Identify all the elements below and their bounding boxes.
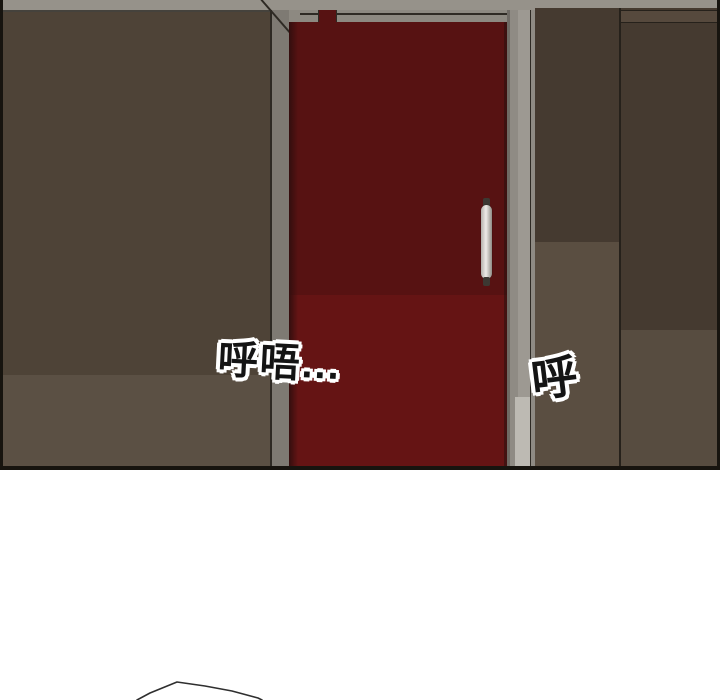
- right-wall-far-panel-lower: [621, 330, 720, 466]
- panel-border-left: [0, 0, 3, 470]
- red-door: [289, 22, 507, 466]
- door-frame-right-highlight: [515, 397, 530, 466]
- right-wall-top-molding: [621, 10, 720, 23]
- door-top-hinge-notch: [318, 10, 337, 22]
- left-wall-lower-band: [3, 375, 270, 466]
- comic-panel: 呼唔... 呼: [0, 0, 720, 470]
- door-frame-left-jamb: [270, 10, 291, 466]
- door-left-edge-shadow: [289, 22, 298, 466]
- door-handle: [481, 205, 492, 279]
- panel-border-bottom: [0, 466, 720, 470]
- sfx-text-right: 呼: [527, 339, 583, 410]
- door-handle-mount-bottom: [483, 277, 490, 286]
- sketch-polyline: [137, 682, 262, 700]
- sfx-text-left: 呼唔...: [217, 327, 343, 391]
